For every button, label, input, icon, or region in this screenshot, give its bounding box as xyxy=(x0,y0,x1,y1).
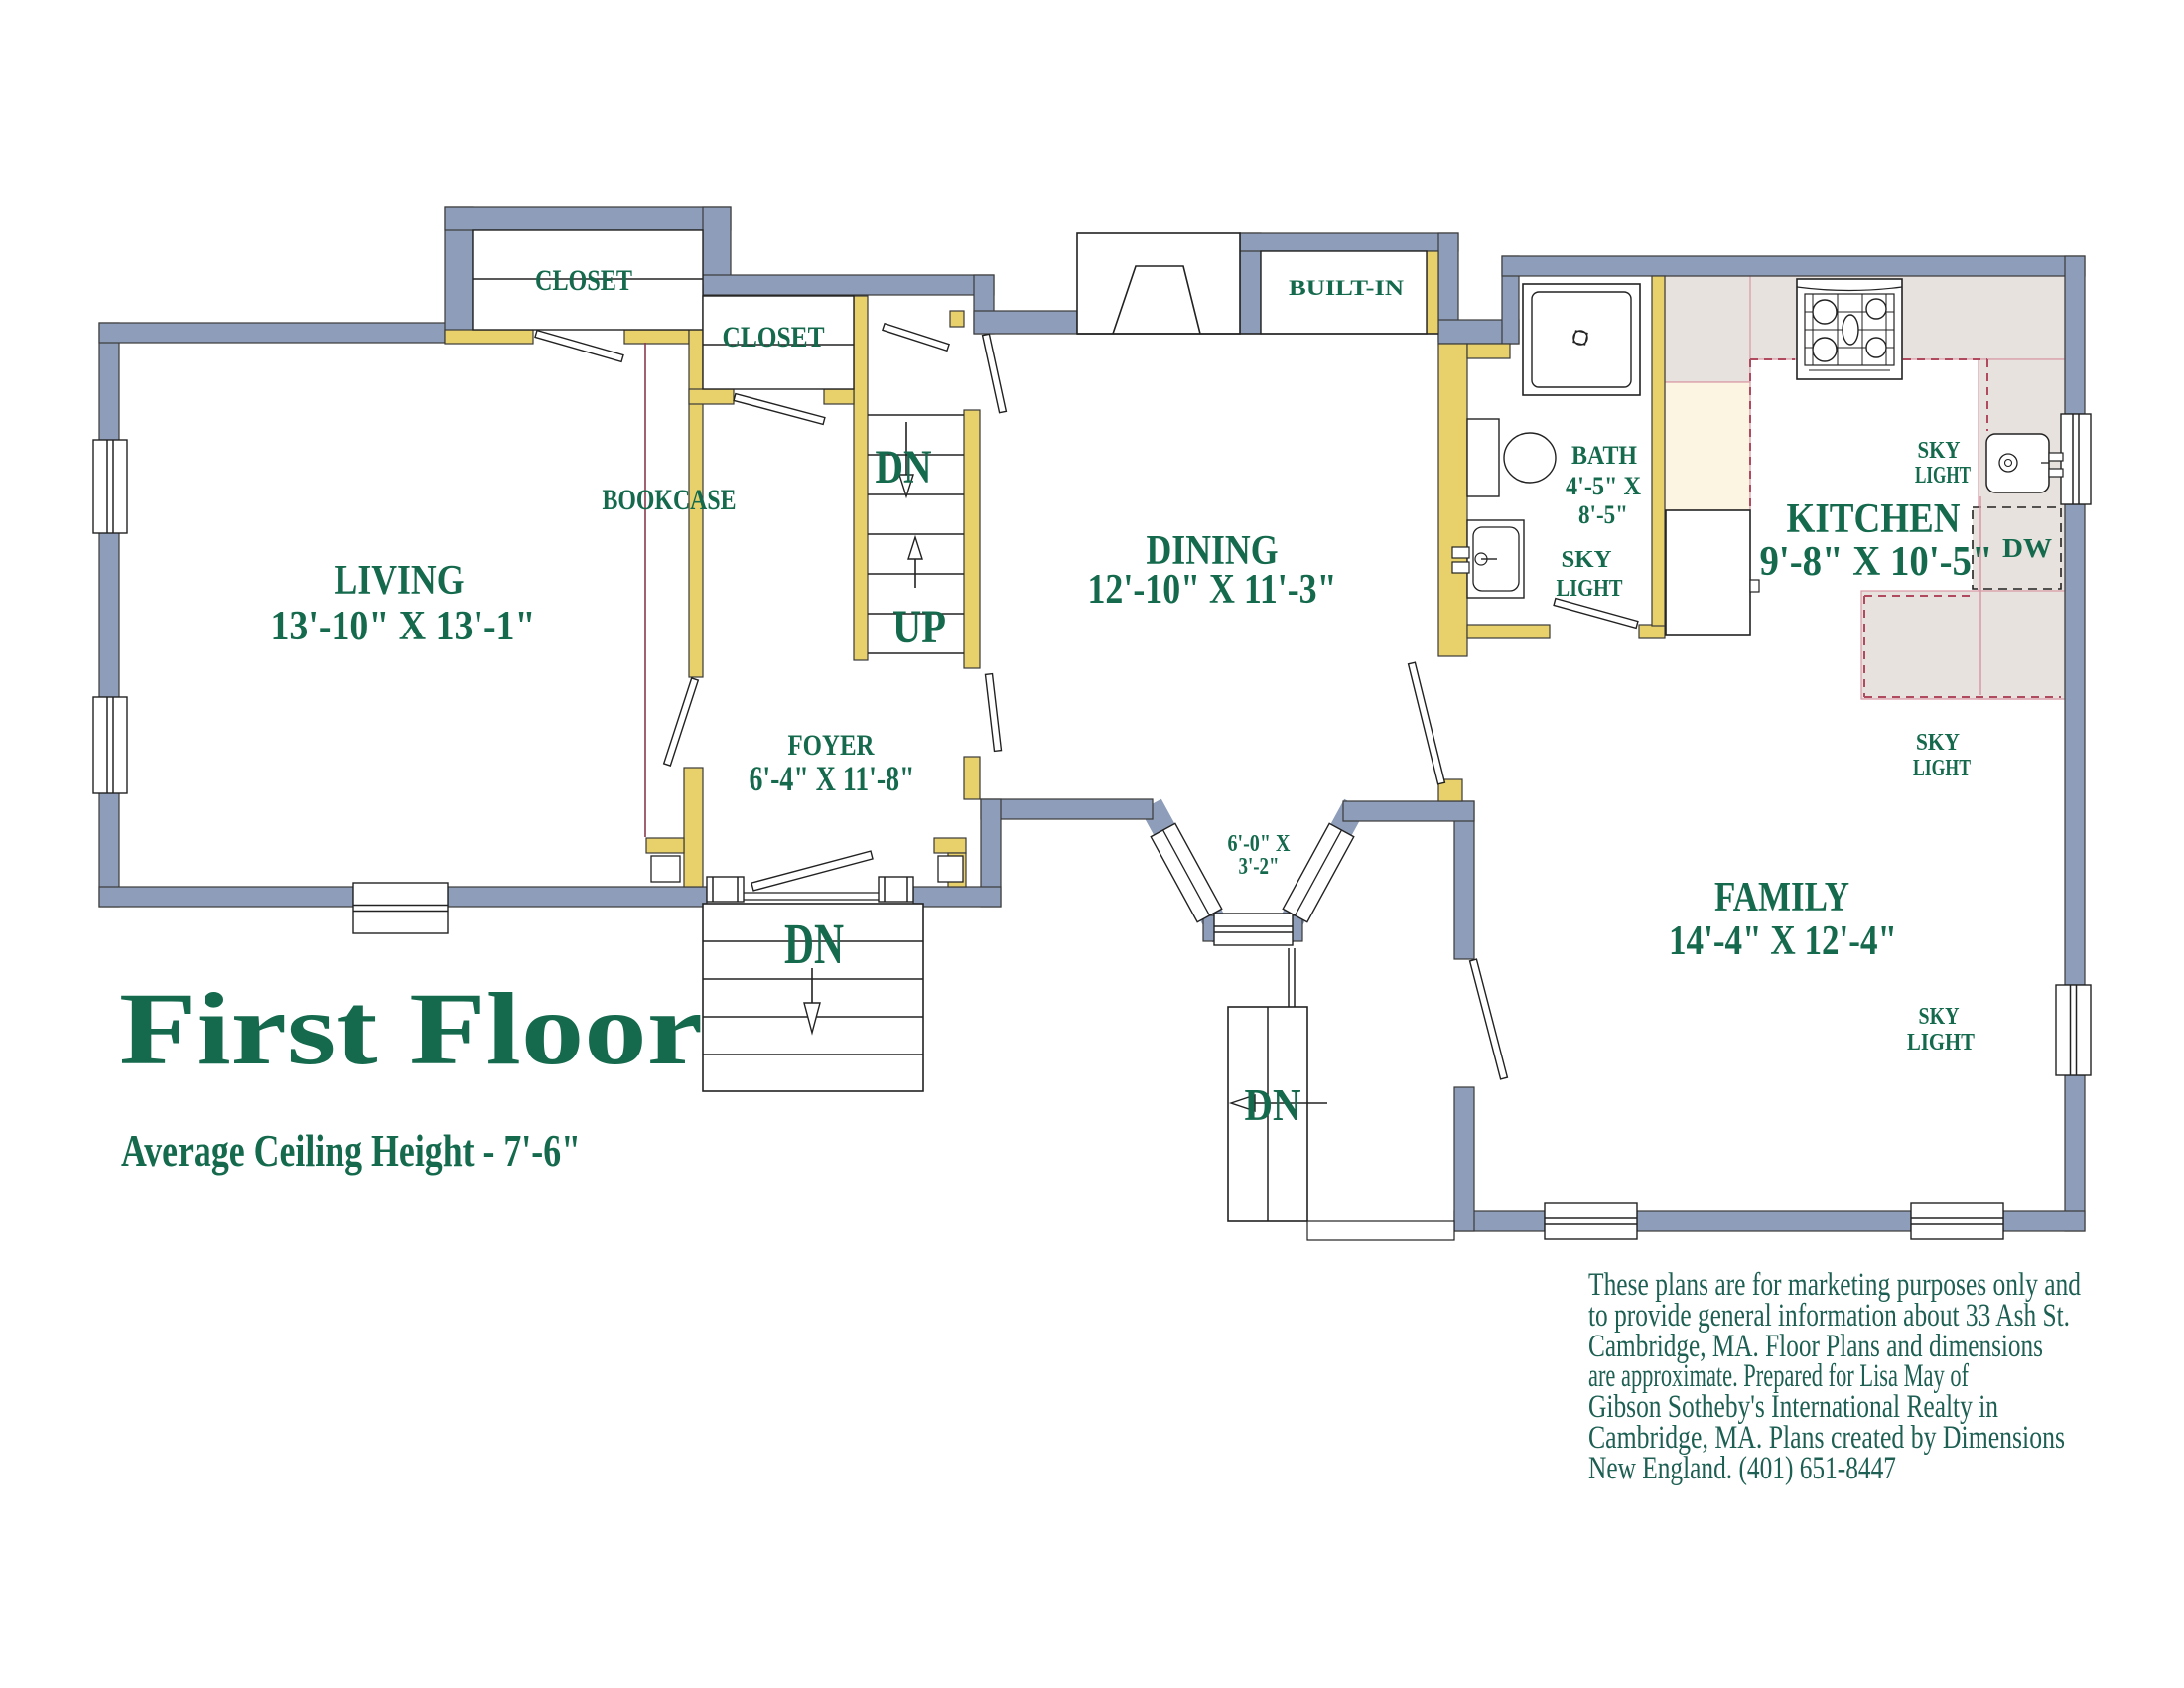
svg-text:SKY: SKY xyxy=(1918,438,1961,464)
svg-text:6'-4" X 11'-8": 6'-4" X 11'-8" xyxy=(750,759,915,798)
svg-text:3'-2": 3'-2" xyxy=(1239,854,1280,880)
svg-text:LIGHT: LIGHT xyxy=(1913,756,1971,781)
svg-text:CLOSET: CLOSET xyxy=(535,264,632,297)
svg-text:DN: DN xyxy=(784,912,844,976)
svg-text:FOYER: FOYER xyxy=(788,729,875,762)
svg-text:SKY: SKY xyxy=(1916,730,1960,756)
svg-text:BATH: BATH xyxy=(1571,441,1637,470)
svg-text:DN: DN xyxy=(876,441,932,493)
svg-text:8'-5": 8'-5" xyxy=(1578,500,1628,529)
svg-text:SKY: SKY xyxy=(1562,547,1612,573)
svg-text:9'-8" X 10'-5": 9'-8" X 10'-5" xyxy=(1760,539,1993,585)
svg-text:LIVING: LIVING xyxy=(335,558,465,604)
svg-text:12'-10" X 11'-3": 12'-10" X 11'-3" xyxy=(1088,567,1337,613)
svg-text:FAMILY: FAMILY xyxy=(1714,875,1849,920)
svg-text:SKY: SKY xyxy=(1919,1004,1960,1030)
svg-text:KITCHEN: KITCHEN xyxy=(1787,496,1961,542)
svg-text:CLOSET: CLOSET xyxy=(723,321,825,353)
svg-text:LIGHT: LIGHT xyxy=(1557,576,1623,602)
svg-text:UP: UP xyxy=(892,601,946,653)
svg-text:LIGHT: LIGHT xyxy=(1907,1030,1975,1055)
svg-text:BUILT-IN: BUILT-IN xyxy=(1289,275,1404,300)
svg-text:4'-5" X: 4'-5" X xyxy=(1566,472,1641,500)
svg-text:BOOKCASE: BOOKCASE xyxy=(603,484,737,516)
svg-text:New England. (401) 651-8447: New England. (401) 651-8447 xyxy=(1588,1451,1896,1486)
svg-text:DW: DW xyxy=(2002,533,2052,563)
svg-text:13'-10" X 13'-1": 13'-10" X 13'-1" xyxy=(271,604,536,649)
svg-text:14'-4" X 12'-4": 14'-4" X 12'-4" xyxy=(1669,918,1897,964)
svg-text:Average Ceiling Height - 7'-6": Average Ceiling Height - 7'-6" xyxy=(121,1125,581,1176)
svg-text:DN: DN xyxy=(1245,1079,1301,1130)
svg-text:LIGHT: LIGHT xyxy=(1915,463,1971,489)
svg-text:First Floor: First Floor xyxy=(119,972,703,1086)
